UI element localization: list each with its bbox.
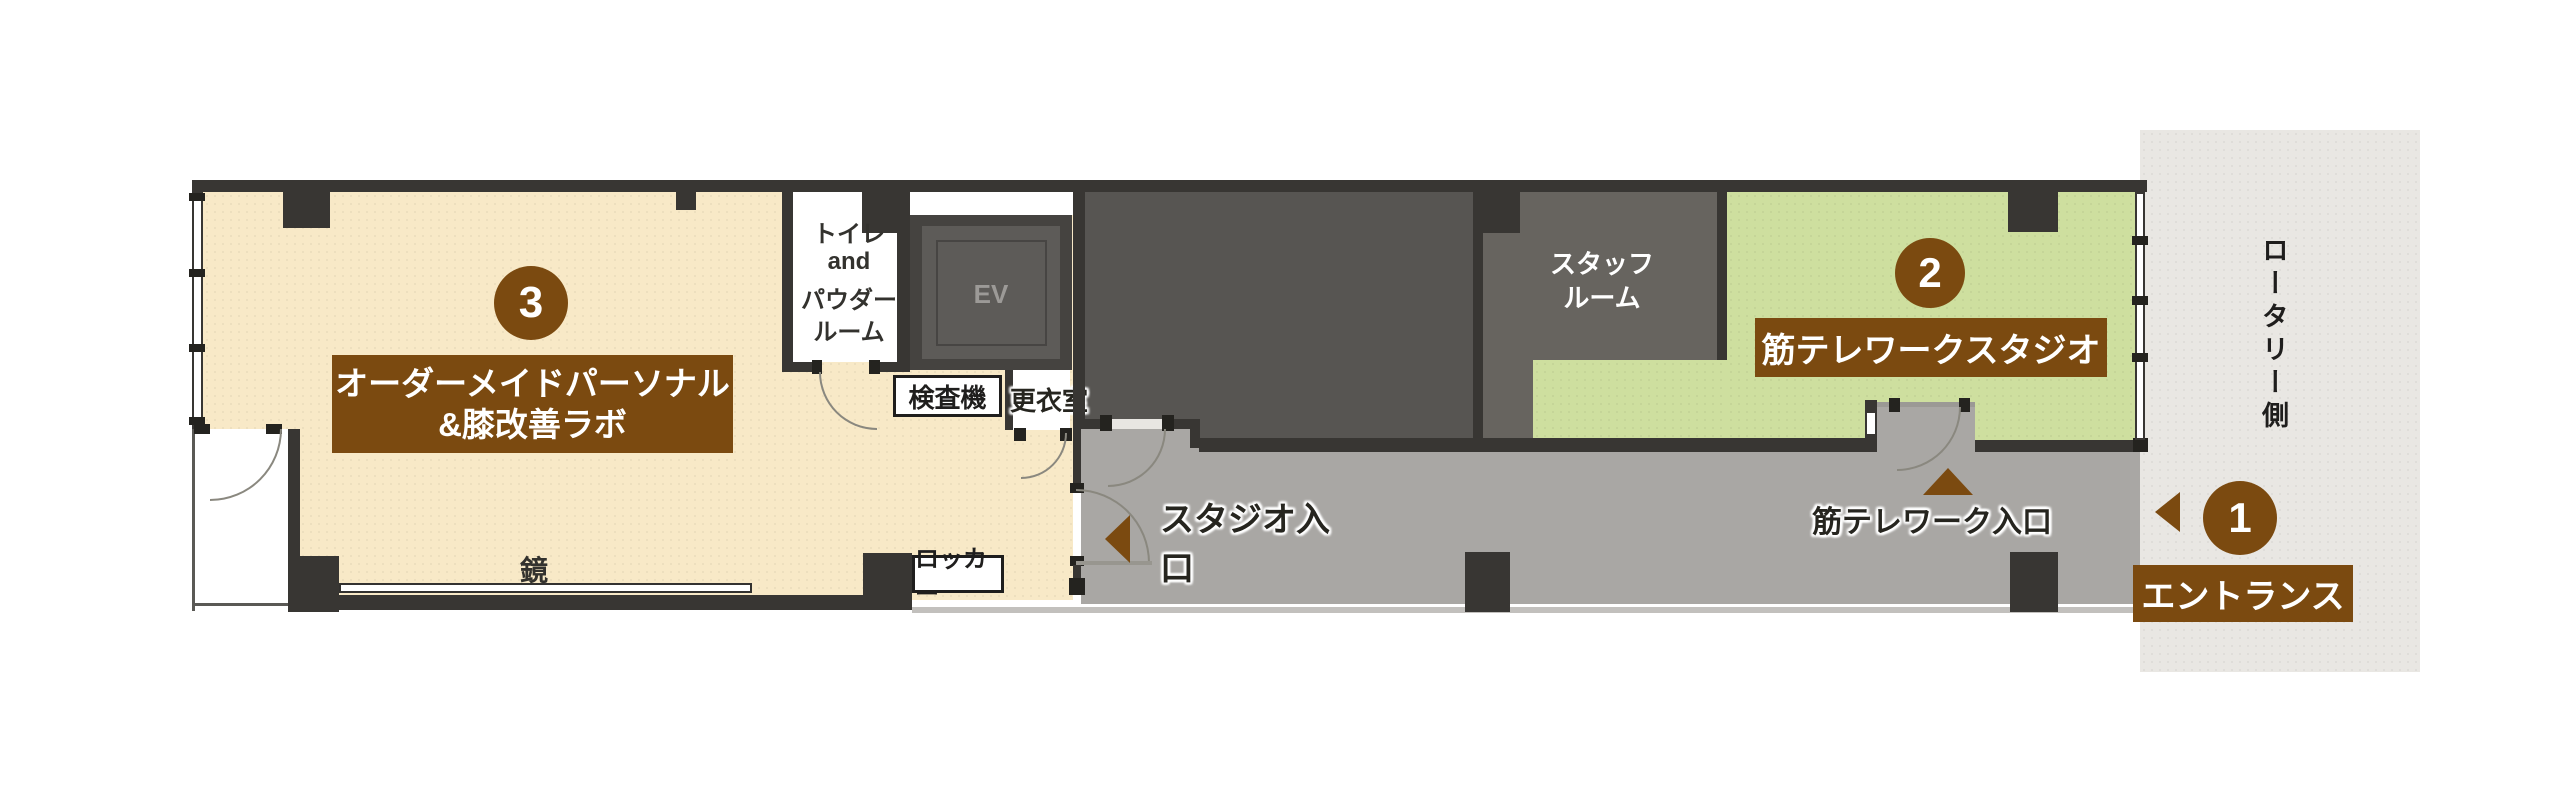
column-corridor-2 — [2010, 552, 2058, 612]
wall-tick-top — [676, 192, 696, 210]
door-leaf — [1867, 413, 1875, 434]
window-tick — [2132, 296, 2148, 305]
window-wall-right — [2135, 192, 2145, 440]
locker-box: ロッカー — [912, 555, 1004, 593]
studio-entrance-label: スタジオ入口 — [1160, 523, 1330, 559]
inspection-box: 検査機 — [893, 375, 1002, 417]
wall-toilet-bottom-b — [875, 362, 910, 372]
toilet-label-1: トイレ — [789, 214, 909, 249]
kin-telework-entrance-arrow-icon — [1923, 468, 1973, 495]
elevator-label: EV — [961, 279, 1021, 310]
wall-staff-right — [1717, 192, 1727, 360]
column-bottom-mid — [863, 553, 912, 610]
column-corridor-1 — [1465, 552, 1510, 612]
wall-corridor-left-upper — [1073, 429, 1081, 489]
floor-plan: 鏡 ロッカー トイレ and パウダー ルーム EV 検査機 更衣室 スタッフ … — [0, 0, 2560, 800]
ev-gap — [910, 192, 1073, 215]
column-top-left — [283, 187, 330, 228]
door-hinge — [194, 424, 210, 434]
window-tick — [189, 344, 205, 352]
notch-edge-left — [192, 429, 195, 611]
room3-name-line1: オーダーメイドパーソナル — [335, 363, 730, 404]
wall-corner-tick — [2133, 438, 2148, 452]
entrance-name: エントランス — [2141, 569, 2344, 618]
toilet-label-3: パウダー — [789, 280, 909, 315]
entrance-number-badge: 1 — [2203, 481, 2277, 555]
wall-room3-bottom — [288, 595, 912, 610]
entrance-name-box: エントランス — [2133, 565, 2353, 622]
room2-name-box: 筋テレワークスタジオ — [1755, 318, 2107, 377]
window-tick — [189, 269, 205, 277]
window-tick — [189, 193, 205, 201]
room3-name-line2: &膝改善ラボ — [438, 404, 627, 445]
staff-room-floor-lower — [1483, 360, 1533, 438]
toilet-label-2: and — [789, 248, 909, 276]
room2-name: 筋テレワークスタジオ — [1762, 323, 2101, 372]
staff-label-2: ルーム — [1532, 278, 1672, 315]
entrance-arrow-icon — [2155, 492, 2180, 532]
wall-studio-green-bottom — [1199, 438, 1865, 452]
studio-room-floor-lower — [1199, 419, 1473, 438]
studio-room-floor — [1085, 192, 1473, 419]
wall-top — [192, 180, 2147, 192]
room2-number: 2 — [1918, 249, 1941, 297]
kin-telework-entrance-label: 筋テレワーク入口 — [1812, 502, 2052, 536]
window-wall-left — [192, 192, 203, 429]
staff-label-1: スタッフ — [1532, 244, 1672, 281]
wall-corner-block — [1069, 578, 1085, 595]
room2-floor-left — [1533, 360, 1727, 443]
rotary-side-label: ロータリー側 — [2253, 225, 2293, 445]
window-tick — [2132, 236, 2148, 245]
toilet-label-4: ルーム — [789, 312, 909, 347]
notch-edge-bottom — [192, 603, 288, 606]
wall-staff-notch-chunk — [1473, 192, 1520, 233]
room3-number-badge: 3 — [494, 266, 568, 340]
room3-name-box: オーダーメイドパーソナル &膝改善ラボ — [332, 355, 733, 453]
studio-door-gap — [1106, 419, 1168, 429]
studio-entrance-arrow-icon — [1105, 515, 1130, 563]
locker-label: ロッカー — [915, 539, 1001, 609]
wall-notch-right — [288, 429, 300, 558]
inspection-label: 検査機 — [908, 378, 986, 415]
wall-room2-bottom-right — [1975, 440, 2135, 452]
room3-number: 3 — [519, 278, 543, 328]
window-tick — [2132, 353, 2148, 362]
column-top-right — [2008, 188, 2058, 232]
wall-studio-left — [1073, 180, 1085, 429]
ground-line — [912, 607, 2140, 613]
room2-number-badge: 2 — [1895, 238, 1965, 308]
mirror-label: 鏡 — [504, 549, 564, 589]
entrance-number: 1 — [2228, 494, 2251, 542]
